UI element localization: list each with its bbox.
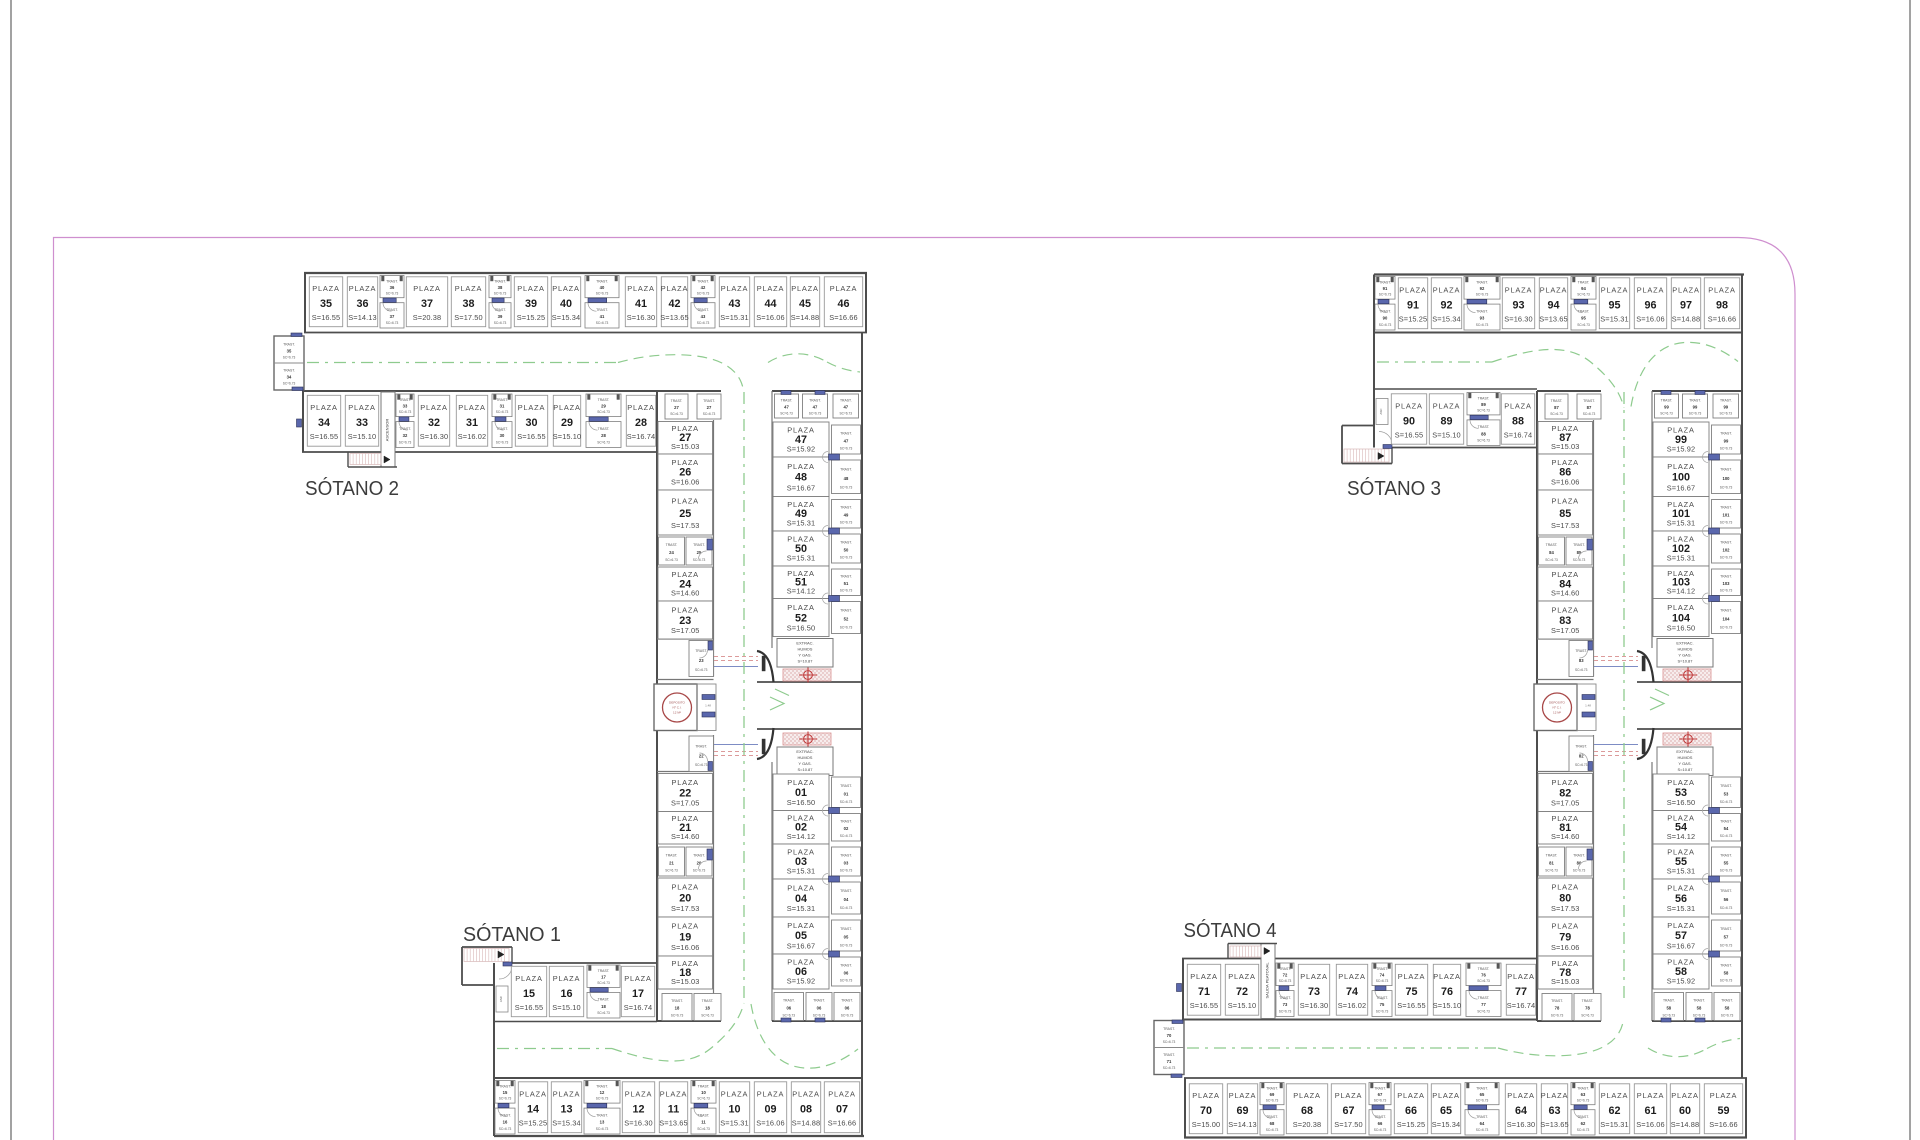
- svg-text:32: 32: [428, 417, 440, 429]
- svg-text:71: 71: [1167, 1059, 1172, 1064]
- svg-text:S=15.31: S=15.31: [787, 554, 815, 563]
- svg-text:52: 52: [844, 617, 849, 622]
- svg-text:63: 63: [1548, 1105, 1560, 1117]
- svg-text:TRAST.: TRAST.: [702, 999, 714, 1003]
- svg-text:42: 42: [668, 298, 680, 310]
- svg-text:PLAZA: PLAZA: [1637, 1091, 1664, 1100]
- svg-text:SC=6.73: SC=6.73: [1266, 1128, 1279, 1132]
- svg-text:73: 73: [1283, 1002, 1288, 1007]
- svg-text:66: 66: [1378, 1121, 1383, 1126]
- svg-text:49: 49: [844, 513, 849, 518]
- svg-text:SC=6.73: SC=6.73: [695, 763, 708, 767]
- svg-text:S=16.06: S=16.06: [756, 1119, 784, 1128]
- svg-text:PLAZA: PLAZA: [1601, 1091, 1628, 1100]
- svg-text:S=14.60: S=14.60: [1551, 589, 1579, 598]
- svg-text:S=15.92: S=15.92: [1667, 445, 1695, 454]
- svg-text:PLAZA: PLAZA: [1433, 972, 1460, 981]
- svg-text:75: 75: [1380, 1002, 1385, 1007]
- svg-text:PLAZA: PLAZA: [1708, 286, 1735, 295]
- svg-text:TRAST.: TRAST.: [1583, 399, 1595, 403]
- svg-text:S=13.65: S=13.65: [660, 313, 688, 322]
- svg-text:SC=6.73: SC=6.73: [1660, 411, 1673, 415]
- svg-text:PLAZA: PLAZA: [1507, 1091, 1534, 1100]
- svg-text:S=16.67: S=16.67: [787, 941, 815, 950]
- svg-text:S=16.50: S=16.50: [1667, 798, 1695, 807]
- svg-text:SC=6.73: SC=6.73: [1477, 409, 1490, 413]
- svg-text:S=15.25: S=15.25: [1399, 315, 1427, 324]
- svg-text:TRAST.: TRAST.: [671, 399, 683, 403]
- svg-text:SC=6.73: SC=6.73: [1477, 439, 1490, 443]
- svg-text:89: 89: [1440, 415, 1452, 427]
- svg-text:TRAST.: TRAST.: [1546, 853, 1558, 857]
- svg-text:74: 74: [1380, 973, 1385, 978]
- svg-text:TRAST.: TRAST.: [695, 744, 707, 748]
- svg-text:79: 79: [1559, 931, 1571, 943]
- svg-text:TRAST.: TRAST.: [1478, 996, 1490, 1000]
- svg-text:SC=6.73: SC=6.73: [1573, 869, 1586, 873]
- svg-text:13: 13: [600, 1120, 605, 1125]
- svg-text:SC=6.73: SC=6.73: [697, 1127, 710, 1131]
- svg-text:93: 93: [1480, 316, 1485, 321]
- svg-text:S=14.13: S=14.13: [348, 313, 376, 322]
- svg-text:38: 38: [498, 285, 503, 290]
- svg-text:S=16.06: S=16.06: [1551, 477, 1579, 486]
- svg-text:PLAZA: PLAZA: [671, 778, 698, 787]
- svg-text:S=15.31: S=15.31: [1667, 519, 1695, 528]
- svg-text:S=15.31: S=15.31: [787, 904, 815, 913]
- svg-text:PLAZA: PLAZA: [1433, 401, 1460, 410]
- svg-text:S=16.06: S=16.06: [1636, 315, 1664, 324]
- svg-text:91: 91: [1383, 286, 1388, 291]
- svg-text:PLAZA: PLAZA: [627, 403, 654, 412]
- svg-text:PLAZA: PLAZA: [792, 1090, 819, 1099]
- svg-text:TRAST.: TRAST.: [1573, 543, 1585, 547]
- svg-text:S=15.31: S=15.31: [1667, 554, 1695, 563]
- svg-text:S=16.06: S=16.06: [1636, 1120, 1664, 1129]
- svg-text:TRAST.: TRAST.: [697, 308, 709, 312]
- svg-text:ASC: ASC: [499, 995, 503, 1002]
- svg-text:SC=6.73: SC=6.73: [1721, 1013, 1734, 1017]
- svg-text:68: 68: [1301, 1105, 1313, 1117]
- svg-text:S=16.55: S=16.55: [517, 432, 545, 441]
- svg-text:SC=6.73: SC=6.73: [1720, 447, 1733, 451]
- svg-text:S=17.53: S=17.53: [1551, 521, 1579, 530]
- svg-text:SC=6.73: SC=6.73: [1720, 800, 1733, 804]
- svg-text:PLAZA: PLAZA: [455, 284, 482, 293]
- svg-text:72: 72: [1236, 986, 1248, 998]
- svg-text:SC=6.73: SC=6.73: [1551, 1014, 1564, 1018]
- svg-text:TRAST.: TRAST.: [1582, 999, 1594, 1003]
- svg-text:PLAZA: PLAZA: [757, 284, 784, 293]
- svg-text:PLAZA: PLAZA: [553, 974, 580, 983]
- svg-text:TRAST.: TRAST.: [1720, 399, 1732, 403]
- svg-text:S=17.53: S=17.53: [1551, 904, 1579, 913]
- svg-text:PLAZA: PLAZA: [1540, 286, 1567, 295]
- svg-text:PLAZA: PLAZA: [787, 921, 814, 930]
- svg-text:95: 95: [1608, 300, 1620, 312]
- svg-text:S=15.10: S=15.10: [1433, 1001, 1461, 1010]
- svg-text:12 M³: 12 M³: [673, 711, 681, 715]
- svg-text:SC=6.73: SC=6.73: [499, 1097, 512, 1101]
- svg-text:41: 41: [635, 298, 647, 310]
- svg-text:SC=6.73: SC=6.73: [1720, 589, 1733, 593]
- svg-text:S=16.66: S=16.66: [1708, 315, 1736, 324]
- svg-text:ASCENSOR: ASCENSOR: [385, 419, 390, 442]
- svg-text:TRAST.: TRAST.: [496, 398, 508, 402]
- svg-text:S=14.12: S=14.12: [1667, 832, 1695, 841]
- svg-text:SC=6.73: SC=6.73: [840, 411, 853, 415]
- svg-text:SC=6.73: SC=6.73: [1279, 1010, 1292, 1014]
- svg-text:SC=6.73: SC=6.73: [1477, 1010, 1490, 1014]
- svg-text:S=15.03: S=15.03: [671, 442, 699, 451]
- svg-text:PLAZA: PLAZA: [1710, 1091, 1737, 1100]
- svg-text:13: 13: [560, 1104, 572, 1116]
- svg-text:S=15.31: S=15.31: [720, 1119, 748, 1128]
- svg-text:SC=6.73: SC=6.73: [1720, 979, 1733, 983]
- svg-text:27: 27: [707, 405, 712, 410]
- svg-text:39: 39: [498, 314, 503, 319]
- svg-text:S=16.02: S=16.02: [458, 432, 486, 441]
- svg-text:TRAST.: TRAST.: [1720, 575, 1732, 579]
- svg-text:EXTRAC.: EXTRAC.: [796, 641, 813, 646]
- svg-text:PLAZA: PLAZA: [1504, 401, 1531, 410]
- svg-text:SC=6.73: SC=6.73: [1376, 979, 1389, 983]
- svg-text:SC=6.73: SC=6.73: [1550, 412, 1563, 416]
- svg-text:S=15.92: S=15.92: [787, 445, 815, 454]
- svg-text:SC=6.73: SC=6.73: [1581, 1014, 1594, 1018]
- svg-text:SC=6.73: SC=6.73: [697, 291, 710, 295]
- svg-text:SC=6.73: SC=6.73: [665, 558, 678, 562]
- svg-text:PLAZA: PLAZA: [1399, 286, 1426, 295]
- svg-text:PLAZA: PLAZA: [310, 403, 337, 412]
- svg-text:PLAZA: PLAZA: [1671, 1091, 1698, 1100]
- svg-text:27: 27: [674, 405, 679, 410]
- svg-text:PLAZA: PLAZA: [1395, 401, 1422, 410]
- svg-text:55: 55: [1724, 860, 1729, 865]
- svg-text:83: 83: [1579, 658, 1584, 663]
- svg-text:TRAST.: TRAST.: [693, 543, 705, 547]
- svg-text:SC=6.73: SC=6.73: [1720, 906, 1733, 910]
- svg-text:89: 89: [1481, 402, 1486, 407]
- svg-text:23: 23: [679, 615, 691, 627]
- svg-text:TRAST.: TRAST.: [598, 427, 610, 431]
- svg-text:PLAZA: PLAZA: [757, 1090, 784, 1099]
- svg-text:35: 35: [287, 348, 292, 353]
- svg-text:S=14.12: S=14.12: [1667, 587, 1695, 596]
- svg-text:PLAZA: PLAZA: [1551, 778, 1578, 787]
- svg-text:SALIDA PEATONAL: SALIDA PEATONAL: [1265, 962, 1270, 999]
- svg-text:S=16.66: S=16.66: [829, 313, 857, 322]
- svg-text:SC=6.73: SC=6.73: [813, 1013, 826, 1017]
- svg-text:TRAST.: TRAST.: [1578, 281, 1590, 285]
- svg-text:TRAST.: TRAST.: [1720, 609, 1732, 613]
- svg-text:98: 98: [1716, 300, 1728, 312]
- svg-text:TRAST.: TRAST.: [841, 999, 853, 1003]
- svg-text:TRAST.: TRAST.: [1266, 1087, 1278, 1091]
- svg-text:S=16.67: S=16.67: [1667, 483, 1695, 492]
- svg-text:12 M³: 12 M³: [1553, 711, 1561, 715]
- svg-text:67: 67: [1378, 1092, 1383, 1097]
- svg-text:TRAST.: TRAST.: [1478, 967, 1490, 971]
- svg-text:TRAST.: TRAST.: [840, 784, 852, 788]
- svg-text:PLAZA: PLAZA: [1551, 605, 1578, 614]
- svg-text:PLAZA: PLAZA: [1433, 286, 1460, 295]
- svg-text:S=16.67: S=16.67: [787, 483, 815, 492]
- svg-text:TRAST.: TRAST.: [386, 280, 398, 284]
- svg-text:HUMOS: HUMOS: [798, 755, 813, 760]
- svg-text:SC=6.73: SC=6.73: [670, 412, 683, 416]
- svg-text:64: 64: [1480, 1121, 1485, 1126]
- svg-text:PLAZA: PLAZA: [1507, 972, 1534, 981]
- svg-text:SC=6.73: SC=6.73: [597, 410, 610, 414]
- svg-text:TRAST.: TRAST.: [598, 969, 610, 973]
- svg-text:S=20.38: S=20.38: [1293, 1120, 1321, 1129]
- svg-text:TRAST.: TRAST.: [1720, 468, 1732, 472]
- svg-text:PLAZA: PLAZA: [787, 462, 814, 471]
- svg-text:05: 05: [844, 935, 849, 940]
- svg-text:PLAZA: PLAZA: [348, 403, 375, 412]
- svg-text:S=15.34: S=15.34: [552, 1119, 580, 1128]
- svg-text:87: 87: [1587, 405, 1592, 410]
- svg-text:94: 94: [1547, 300, 1559, 312]
- svg-text:SC=6.73: SC=6.73: [1583, 412, 1596, 416]
- svg-text:PLAZA: PLAZA: [517, 284, 544, 293]
- svg-text:TRAST.: TRAST.: [494, 280, 506, 284]
- svg-text:29: 29: [561, 417, 573, 429]
- svg-text:SÓTANO 2: SÓTANO 2: [305, 477, 399, 500]
- svg-text:PLAZA: PLAZA: [1667, 883, 1694, 892]
- svg-text:TRAST.: TRAST.: [1546, 543, 1558, 547]
- svg-text:43: 43: [728, 298, 740, 310]
- svg-text:S=15.31: S=15.31: [1667, 904, 1695, 913]
- svg-text:PLAZA: PLAZA: [1601, 286, 1628, 295]
- svg-text:104: 104: [1672, 612, 1690, 624]
- svg-text:S=16.55: S=16.55: [1190, 1001, 1218, 1010]
- svg-text:90: 90: [1403, 415, 1415, 427]
- svg-text:PLAZA: PLAZA: [787, 603, 814, 612]
- svg-text:PLAZA: PLAZA: [661, 284, 688, 293]
- svg-text:SC=6.73: SC=6.73: [596, 1127, 609, 1131]
- svg-text:17: 17: [632, 988, 644, 1000]
- svg-text:58: 58: [1725, 1005, 1730, 1010]
- svg-text:38: 38: [462, 298, 474, 310]
- svg-text:S=17.05: S=17.05: [671, 626, 699, 635]
- svg-text:57: 57: [1724, 935, 1729, 940]
- svg-text:TRAST.: TRAST.: [399, 398, 411, 402]
- svg-text:S=15.31: S=15.31: [720, 313, 748, 322]
- svg-text:TRAST.: TRAST.: [840, 853, 852, 857]
- svg-text:TRAST.: TRAST.: [783, 999, 795, 1003]
- svg-text:SC=6.73: SC=6.73: [840, 943, 853, 947]
- svg-text:39: 39: [525, 298, 537, 310]
- svg-text:TRAST.: TRAST.: [1573, 853, 1585, 857]
- svg-text:59: 59: [1717, 1105, 1729, 1117]
- svg-text:63: 63: [1581, 1092, 1586, 1097]
- svg-text:S=14.88: S=14.88: [1672, 315, 1700, 324]
- svg-text:SC=6.73: SC=6.73: [1573, 558, 1586, 562]
- svg-text:S=16.30: S=16.30: [1300, 1001, 1328, 1010]
- svg-text:S=16.66: S=16.66: [1709, 1120, 1737, 1129]
- svg-text:EXTRAC.: EXTRAC.: [796, 749, 813, 754]
- svg-text:TRAST.: TRAST.: [1163, 1027, 1175, 1031]
- svg-text:TRAST.: TRAST.: [1376, 967, 1388, 971]
- svg-text:SC=6.73: SC=6.73: [1374, 1128, 1387, 1132]
- svg-text:SC=6.73: SC=6.73: [809, 411, 822, 415]
- svg-text:S=14.13: S=14.13: [1228, 1120, 1256, 1129]
- svg-text:S=16.74: S=16.74: [624, 1003, 652, 1012]
- svg-text:06: 06: [817, 1005, 822, 1010]
- svg-text:51: 51: [844, 581, 849, 586]
- svg-text:58: 58: [1697, 1005, 1702, 1010]
- svg-text:06: 06: [786, 1005, 791, 1010]
- svg-text:S=15.34: S=15.34: [1432, 315, 1460, 324]
- svg-text:SC=6.73: SC=6.73: [597, 981, 610, 985]
- svg-text:30: 30: [500, 433, 505, 438]
- svg-text:65: 65: [1440, 1105, 1452, 1117]
- svg-text:PLAZA: PLAZA: [420, 403, 447, 412]
- svg-text:08: 08: [800, 1104, 812, 1116]
- svg-text:DEPOSITO: DEPOSITO: [669, 701, 686, 705]
- svg-text:S=16.30: S=16.30: [624, 1119, 652, 1128]
- svg-text:65: 65: [1480, 1092, 1485, 1097]
- svg-text:S=17.50: S=17.50: [454, 313, 482, 322]
- svg-text:SC=6.73: SC=6.73: [701, 1014, 714, 1018]
- svg-text:S=15.10: S=15.10: [348, 432, 376, 441]
- svg-text:TRAST.: TRAST.: [1720, 431, 1732, 435]
- svg-text:SC=6.73: SC=6.73: [693, 558, 706, 562]
- svg-text:81: 81: [1549, 860, 1554, 865]
- svg-text:TRAST.: TRAST.: [596, 1113, 608, 1117]
- svg-text:92: 92: [1480, 286, 1485, 291]
- svg-text:80: 80: [1559, 892, 1571, 904]
- svg-text:SC=6.73: SC=6.73: [496, 441, 509, 445]
- svg-text:TRAST.: TRAST.: [1721, 999, 1733, 1003]
- svg-text:SC=6.73: SC=6.73: [693, 869, 706, 873]
- svg-text:TRAST.: TRAST.: [1476, 309, 1488, 313]
- svg-text:SC=6.73: SC=6.73: [1163, 1040, 1176, 1044]
- svg-text:TRAST.: TRAST.: [499, 1085, 511, 1089]
- svg-text:TRAST.: TRAST.: [598, 398, 610, 402]
- svg-text:SC=6.73: SC=6.73: [840, 486, 853, 490]
- svg-text:TRAST.: TRAST.: [840, 506, 852, 510]
- svg-text:34: 34: [318, 417, 330, 429]
- svg-text:TRAST.: TRAST.: [1279, 967, 1291, 971]
- svg-text:SC=6.73: SC=6.73: [1720, 869, 1733, 873]
- svg-text:18: 18: [601, 1004, 606, 1009]
- svg-text:PLAZA: PLAZA: [1293, 1091, 1320, 1100]
- svg-text:PLAZA: PLAZA: [1667, 462, 1694, 471]
- svg-text:S=17.53: S=17.53: [671, 521, 699, 530]
- svg-text:TRAST.: TRAST.: [781, 399, 793, 403]
- svg-text:TRAST.: TRAST.: [386, 308, 398, 312]
- svg-text:SÓTANO 1: SÓTANO 1: [463, 923, 561, 946]
- svg-text:S=10.87: S=10.87: [1677, 767, 1693, 772]
- svg-text:64: 64: [1515, 1105, 1527, 1117]
- svg-text:88: 88: [1481, 431, 1486, 436]
- svg-text:TRAST.: TRAST.: [1689, 399, 1701, 403]
- svg-text:S=10.87: S=10.87: [797, 767, 813, 772]
- svg-text:TRAST.: TRAST.: [1720, 927, 1732, 931]
- svg-text:12: 12: [632, 1104, 644, 1116]
- svg-text:SC=6.73: SC=6.73: [1720, 943, 1733, 947]
- svg-text:PLAZA: PLAZA: [1667, 603, 1694, 612]
- svg-text:47: 47: [844, 438, 849, 443]
- svg-text:61: 61: [1644, 1105, 1656, 1117]
- svg-text:PLAZA: PLAZA: [553, 1090, 580, 1099]
- svg-text:12: 12: [600, 1090, 605, 1095]
- svg-text:S=15.00: S=15.00: [1192, 1120, 1220, 1129]
- svg-text:TRAST.: TRAST.: [697, 280, 709, 284]
- svg-text:S=16.30: S=16.30: [627, 313, 655, 322]
- svg-text:SC=6.73: SC=6.73: [1693, 1013, 1706, 1017]
- svg-text:77: 77: [1481, 1002, 1486, 1007]
- svg-text:PLAZA: PLAZA: [1637, 286, 1664, 295]
- svg-text:S=15.10: S=15.10: [552, 1003, 580, 1012]
- svg-text:PLAZA: PLAZA: [671, 922, 698, 931]
- svg-text:SC=6.73: SC=6.73: [840, 556, 853, 560]
- svg-text:S=16.02: S=16.02: [1338, 1001, 1366, 1010]
- svg-text:19: 19: [679, 931, 691, 943]
- svg-text:40: 40: [600, 285, 605, 290]
- svg-text:TRAST.: TRAST.: [666, 853, 678, 857]
- svg-text:Y GAS.: Y GAS.: [798, 761, 811, 766]
- svg-text:09: 09: [764, 1104, 776, 1116]
- svg-text:DEPOSITO: DEPOSITO: [1549, 701, 1566, 705]
- svg-text:HUMOS: HUMOS: [798, 647, 813, 652]
- svg-text:S=16.06: S=16.06: [671, 943, 699, 952]
- svg-text:TRAST.: TRAST.: [1379, 281, 1391, 285]
- svg-text:73: 73: [1308, 986, 1320, 998]
- svg-text:74: 74: [1346, 986, 1358, 998]
- svg-text:PLAZA: PLAZA: [519, 1090, 546, 1099]
- svg-text:PLAZA: PLAZA: [552, 284, 579, 293]
- svg-text:33: 33: [403, 404, 408, 409]
- svg-text:TRAST.: TRAST.: [698, 1113, 710, 1117]
- svg-text:06: 06: [844, 970, 849, 975]
- svg-text:PLAZA: PLAZA: [1551, 497, 1578, 506]
- svg-text:SC=6.73: SC=6.73: [597, 1011, 610, 1015]
- svg-text:S=16.06: S=16.06: [756, 313, 784, 322]
- svg-text:S=16.50: S=16.50: [1667, 624, 1695, 633]
- svg-text:SC=6.73: SC=6.73: [596, 291, 609, 295]
- svg-text:10: 10: [728, 1104, 740, 1116]
- svg-text:04: 04: [795, 893, 807, 905]
- svg-text:TRAST.: TRAST.: [1577, 1115, 1589, 1119]
- svg-text:TRAST.: TRAST.: [1720, 819, 1732, 823]
- svg-text:PLAZA: PLAZA: [1551, 922, 1578, 931]
- svg-text:48: 48: [795, 472, 807, 484]
- svg-text:TRAST.: TRAST.: [596, 308, 608, 312]
- svg-text:92: 92: [1440, 300, 1452, 312]
- svg-text:PLAZA: PLAZA: [1432, 1091, 1459, 1100]
- svg-text:TRAST.: TRAST.: [283, 369, 295, 373]
- svg-text:S=16.30: S=16.30: [1504, 315, 1532, 324]
- svg-text:SC=6.73: SC=6.73: [1545, 558, 1558, 562]
- svg-text:94: 94: [1581, 286, 1586, 291]
- svg-text:S=16.74: S=16.74: [627, 432, 655, 441]
- svg-text:S=17.05: S=17.05: [671, 799, 699, 808]
- svg-text:S=13.65: S=13.65: [1540, 1120, 1568, 1129]
- svg-text:SÓTANO 4: SÓTANO 4: [1184, 919, 1277, 942]
- svg-text:37: 37: [390, 314, 395, 319]
- svg-text:S=15.03: S=15.03: [1551, 442, 1579, 451]
- svg-text:SC=6.73: SC=6.73: [703, 412, 716, 416]
- svg-text:TRAST.: TRAST.: [1663, 999, 1675, 1003]
- svg-text:S=16.30: S=16.30: [420, 432, 448, 441]
- svg-text:TRAST.: TRAST.: [809, 399, 821, 403]
- svg-text:14: 14: [527, 1104, 539, 1116]
- svg-text:03: 03: [844, 860, 849, 865]
